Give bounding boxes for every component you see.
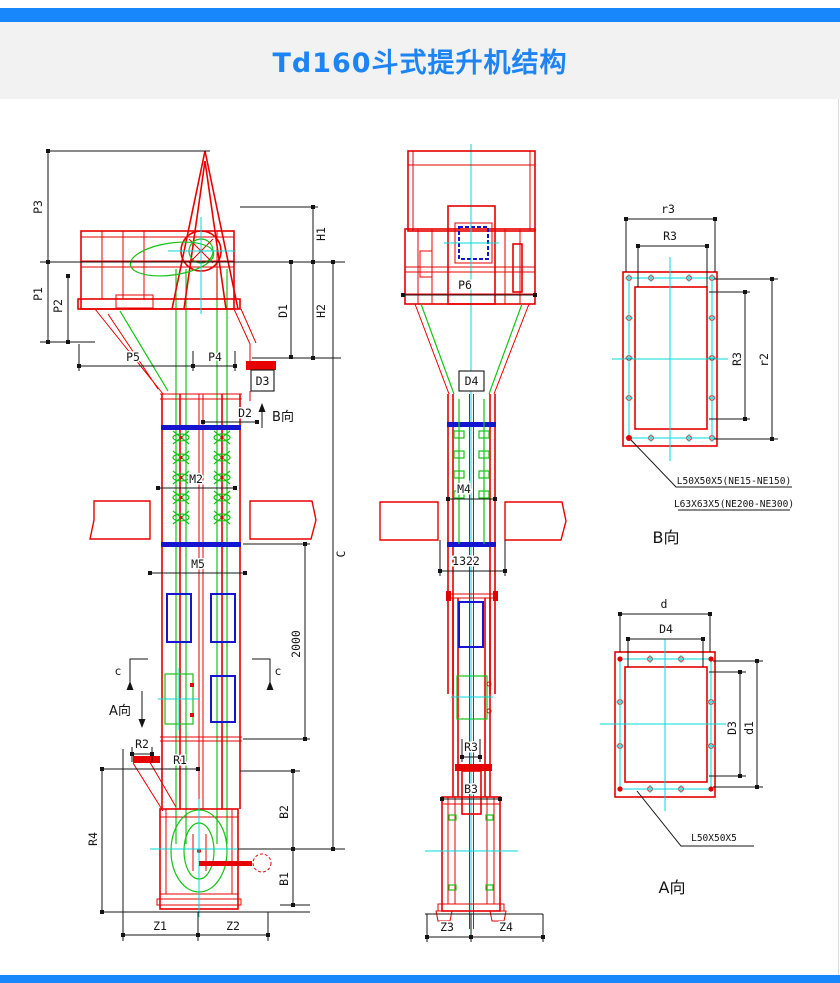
top-accent-bar <box>0 8 840 22</box>
view-arrow-b: B向 <box>272 409 294 425</box>
dim-label-b1: B1 <box>277 872 291 886</box>
dim-label-z1: Z1 <box>153 919 167 933</box>
angle-steel-note-2: L63X63X5(NE200-NE300) <box>674 499 794 510</box>
detail-view-a: d D4 D3 d1 L50X50X5 A向 <box>600 597 763 897</box>
dim-label-d-outer: d <box>661 597 668 611</box>
dim-label-r3-outer: r3 <box>661 202 675 216</box>
dim-label-m4: M4 <box>457 482 471 496</box>
dim-label-d2: D2 <box>238 406 252 420</box>
dim-label-m5: M5 <box>191 557 205 571</box>
angle-steel-note-a: L50X50X5 <box>691 833 737 844</box>
dim-label-p2: P2 <box>51 299 65 313</box>
detail-a-caption: A向 <box>659 878 686 897</box>
page: Td160斗式提升机结构 <box>0 0 840 983</box>
dim-label-p5: P5 <box>126 350 140 364</box>
detail-view-b: r3 R3 R3 r2 L50X50X5(NE15-NE150) L63X63X… <box>612 202 794 547</box>
dim-label-r4: R4 <box>86 832 100 846</box>
boot-section <box>150 799 271 917</box>
front-view: P3 P1 P2 P5 P4 H1 D1 H2 C D2 D3 B向 M2 M5… <box>31 151 348 941</box>
dim-label-1322: 1322 <box>452 554 480 568</box>
side-trunk <box>446 394 498 929</box>
dim-label-p4: P4 <box>208 350 222 364</box>
dim-label-d1: D1 <box>276 304 290 318</box>
bottom-accent-bar <box>0 975 840 983</box>
dim-label-r3: R3 <box>464 740 478 754</box>
drawing-canvas: P3 P1 P2 P5 P4 H1 D1 H2 C D2 D3 B向 M2 M5… <box>0 99 840 975</box>
dim-label-r2: R2 <box>135 737 149 751</box>
dim-label-h1: H1 <box>314 227 328 241</box>
dim-label-c: C <box>334 550 348 557</box>
head-housing <box>78 217 262 314</box>
section-label-c-left: c <box>115 664 122 678</box>
dim-label-b3: B3 <box>464 782 478 796</box>
dim-label-p6: P6 <box>458 278 472 292</box>
dim-label-d1-height: d1 <box>742 721 756 735</box>
detail-b-caption: B向 <box>653 528 680 547</box>
dim-label-2000: 2000 <box>289 630 303 658</box>
dim-label-d4: D4 <box>465 374 479 388</box>
side-view: P6 D4 M4 1322 R3 B3 Z3 Z4 <box>380 144 566 942</box>
view-arrow-a: A向 <box>109 703 131 719</box>
dim-label-z2: Z2 <box>226 919 240 933</box>
angle-steel-note-1: L50X50X5(NE15-NE150) <box>677 476 791 487</box>
dim-label-p3: P3 <box>31 200 45 214</box>
title-band: Td160斗式提升机结构 <box>0 22 840 99</box>
dim-label-z4: Z4 <box>499 920 513 934</box>
dim-label-p1: P1 <box>31 287 45 301</box>
dim-label-d4-inner: D4 <box>659 622 673 636</box>
right-edge-divider <box>838 99 839 975</box>
head-mast <box>172 151 238 309</box>
dim-label-r3-inner: R3 <box>663 229 677 243</box>
dim-label-r1: R1 <box>173 753 187 767</box>
dim-label-h2: H2 <box>314 304 328 318</box>
elevator-structure-drawing: P3 P1 P2 P5 P4 H1 D1 H2 C D2 D3 B向 M2 M5… <box>0 99 840 975</box>
dim-label-d3-height: D3 <box>725 721 739 735</box>
dim-label-b2: B2 <box>277 805 291 819</box>
dim-label-z3: Z3 <box>440 920 454 934</box>
section-label-c-right: c <box>275 664 282 678</box>
page-title: Td160斗式提升机结构 <box>272 41 567 80</box>
dim-label-m2: M2 <box>189 472 203 486</box>
dim-label-r2-height: r2 <box>757 353 771 367</box>
feed-chute <box>123 749 176 912</box>
inspection-doors-front <box>158 594 235 730</box>
dim-label-d3: D3 <box>256 374 270 388</box>
dim-label-r3-height: R3 <box>730 352 744 366</box>
